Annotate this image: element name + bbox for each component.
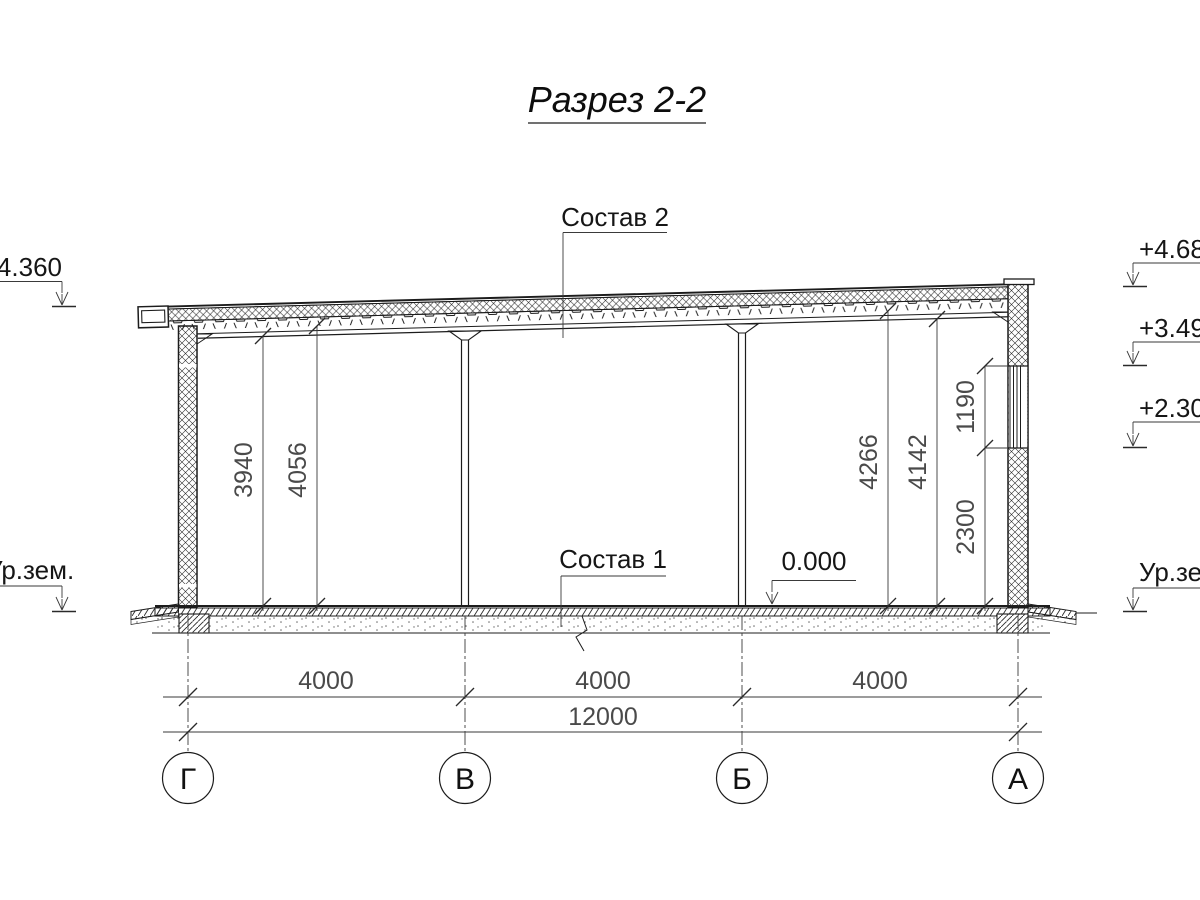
- elevation-mark-right-roof: +3.49: [1123, 313, 1200, 366]
- elevation-value: +2.30: [1139, 393, 1200, 423]
- window: [1008, 366, 1028, 448]
- dim-label-3940: 3940: [230, 442, 258, 498]
- dim-label-total: 12000: [568, 703, 638, 731]
- level-arrow-icon: [766, 592, 778, 604]
- column-capital: [726, 324, 758, 333]
- zero-level-label: 0.000: [781, 546, 846, 576]
- floor-concrete-layer: [157, 616, 1048, 632]
- level-arrow-icon: [56, 292, 68, 305]
- ground-level-label: Ур.зем.: [0, 555, 74, 585]
- parapet-cap: [1004, 279, 1034, 285]
- elevation-mark-right-window: +2.30: [1123, 393, 1200, 448]
- foundation-left: [179, 614, 209, 633]
- elevation-mark-left-roof: +4.360: [0, 252, 76, 307]
- floor-slab: [152, 606, 1050, 633]
- level-arrow-icon: [56, 597, 68, 610]
- dim-label-4142: 4142: [904, 434, 932, 490]
- dim-label-bay-2: 4000: [575, 667, 631, 695]
- dim-vertical-right: 4266 4142 1190 2300: [855, 303, 1008, 614]
- elevation-mark-right-parapet: +4.68: [1123, 234, 1200, 287]
- eaves-fascia: [138, 306, 169, 328]
- dim-label-2300: 2300: [952, 499, 980, 555]
- level-arrow-icon: [1127, 597, 1139, 610]
- section-drawing: Разрез 2-2: [0, 0, 1200, 900]
- ground-level-label: Ур.зем.: [1139, 557, 1200, 587]
- dim-total: 12000: [163, 703, 1042, 741]
- dim-label-1190: 1190: [952, 380, 980, 434]
- elevation-value: +4.68: [1139, 234, 1200, 264]
- axis-bubble-v: В: [440, 753, 491, 804]
- elevation-value: +4.360: [0, 252, 62, 282]
- level-arrow-icon: [1127, 351, 1139, 364]
- foundation-right: [997, 614, 1028, 633]
- right-wall: [1008, 284, 1028, 607]
- dim-label-4056: 4056: [284, 442, 312, 498]
- roof-assembly: [138, 284, 1009, 340]
- axis-label-b: Б: [732, 763, 752, 796]
- dim-vertical-left: 3940 4056: [230, 318, 325, 614]
- page-title: Разрез 2-2: [528, 79, 706, 120]
- axis-bubble-b: Б: [717, 753, 768, 804]
- axis-label-a: А: [1008, 763, 1028, 796]
- zero-level-mark: 0.000: [766, 546, 856, 604]
- floor-screed-layer: [155, 608, 1050, 616]
- level-arrow-icon: [1127, 272, 1139, 285]
- level-arrow-icon: [1127, 433, 1139, 446]
- elevation-mark-right-ground: Ур.зем.: [1123, 557, 1200, 612]
- beam-bearing-wedge-left: [197, 334, 212, 344]
- axis-bubble-g: Г: [163, 753, 214, 804]
- drawing-title: Разрез 2-2: [528, 79, 706, 123]
- panel-joint: [179, 584, 197, 588]
- axis-label-v: В: [455, 763, 475, 796]
- dim-label-bay-3: 4000: [852, 667, 908, 695]
- roof-composition-label: Состав 2: [561, 202, 669, 232]
- column-capital: [449, 331, 481, 340]
- floor-composition-label: Состав 1: [559, 544, 667, 574]
- panel-joint: [179, 364, 197, 368]
- dim-bays: 4000 4000 4000: [163, 667, 1042, 706]
- dim-label-bay-1: 4000: [298, 667, 354, 695]
- left-wall: [179, 326, 198, 607]
- column-v: [449, 331, 481, 606]
- dim-label-4266: 4266: [855, 434, 883, 490]
- axis-label-g: Г: [180, 763, 196, 796]
- elevation-mark-left-ground: Ур.зем.: [0, 555, 76, 612]
- column-b: [726, 324, 758, 606]
- axis-bubble-a: А: [993, 753, 1044, 804]
- elevation-value: +3.49: [1139, 313, 1200, 343]
